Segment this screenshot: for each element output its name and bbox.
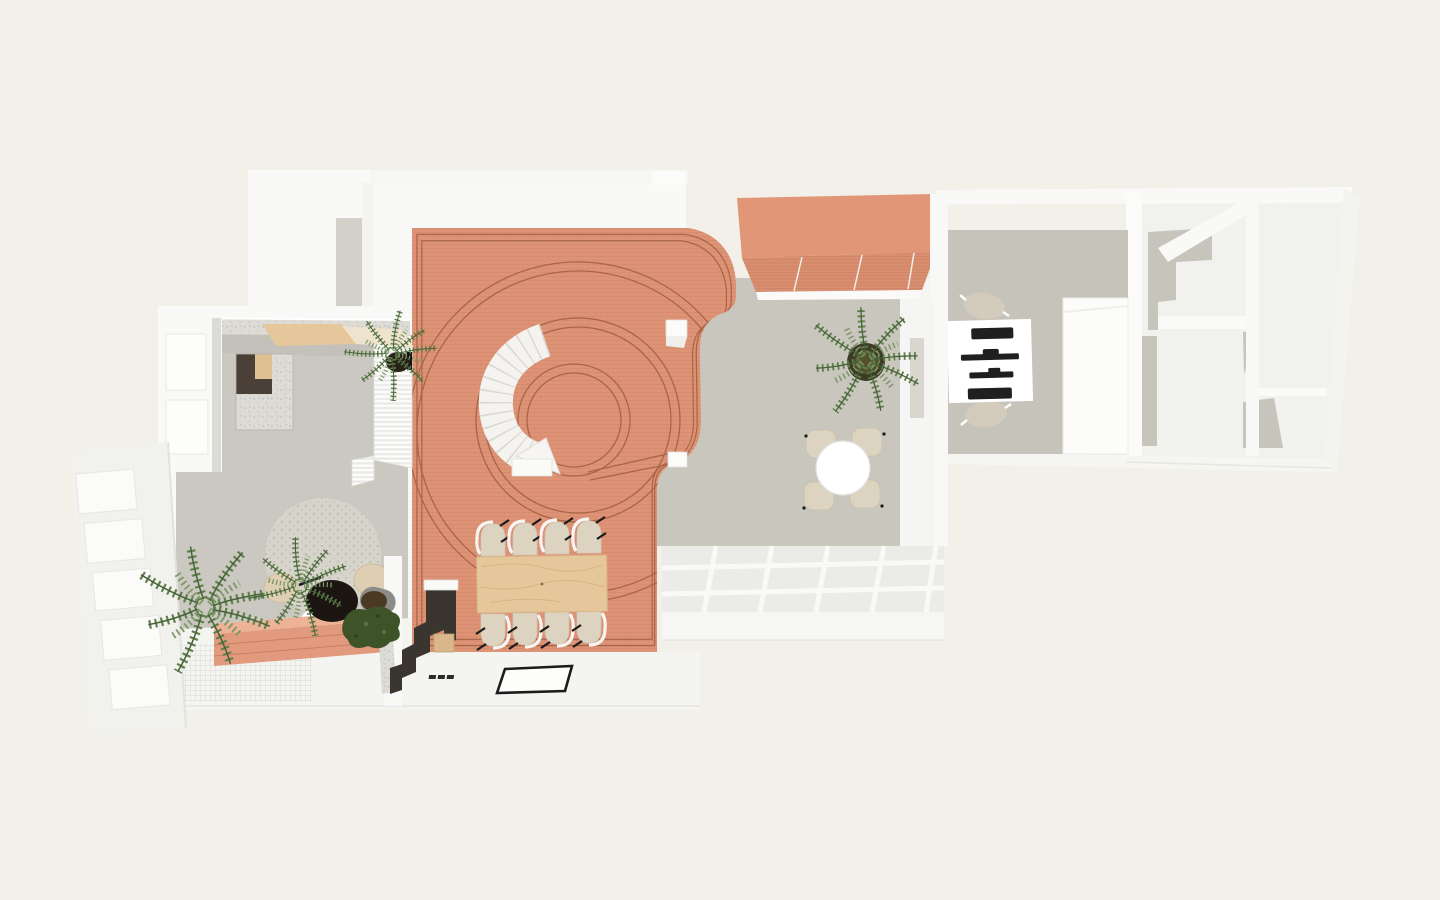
window-pane — [166, 400, 208, 454]
closet-volume — [1063, 298, 1128, 454]
laptop-closed — [971, 327, 1013, 339]
dining-set — [476, 517, 607, 650]
sofa-wood-tray — [255, 354, 274, 379]
service-wing-top-wall — [936, 187, 1352, 204]
window-pane — [84, 519, 145, 564]
partition-wall-d — [1259, 388, 1327, 396]
window-pane — [76, 469, 137, 514]
laptop-closed-2 — [968, 387, 1012, 399]
floor-plan-canvas — [0, 0, 1440, 900]
stair-top-landing — [424, 580, 458, 590]
wood-board — [262, 324, 356, 346]
l-shaped-sofa — [236, 354, 293, 430]
pergola-grid — [662, 546, 944, 640]
grey-floor-strip — [1140, 336, 1157, 446]
round-table — [816, 441, 870, 495]
north-west-grey-patch — [336, 218, 364, 312]
floor-plan-illustration — [0, 0, 1440, 900]
desk — [947, 319, 1033, 403]
south-west-window-wall — [70, 442, 186, 736]
terracotta-awning — [737, 194, 948, 300]
study-room — [944, 230, 1128, 454]
dining-table — [477, 555, 608, 613]
partition-wall-b — [1158, 316, 1248, 329]
stair-wood-cabinet — [434, 634, 454, 652]
partition-wall-c — [1246, 194, 1259, 456]
window-pane — [109, 665, 170, 710]
window-pane — [166, 334, 206, 390]
window-pane — [101, 615, 162, 660]
doormat-logo — [429, 675, 455, 679]
awning-flat-top — [737, 194, 936, 258]
